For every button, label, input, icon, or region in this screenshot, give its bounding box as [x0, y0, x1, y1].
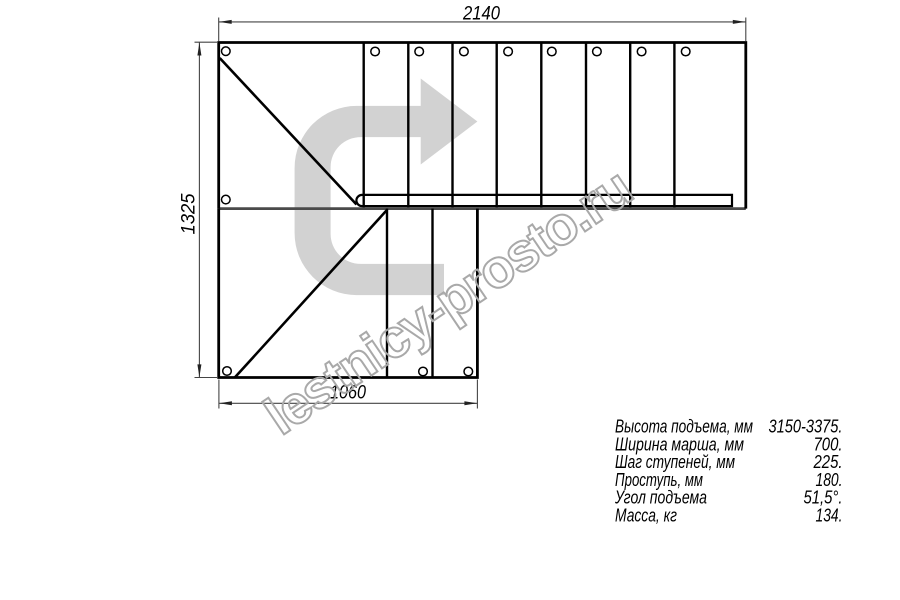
svg-text:134.: 134. — [816, 506, 843, 526]
svg-text:2140: 2140 — [462, 4, 500, 25]
svg-text:1325: 1325 — [179, 193, 200, 234]
svg-text:Масса, кг: Масса, кг — [615, 506, 677, 526]
